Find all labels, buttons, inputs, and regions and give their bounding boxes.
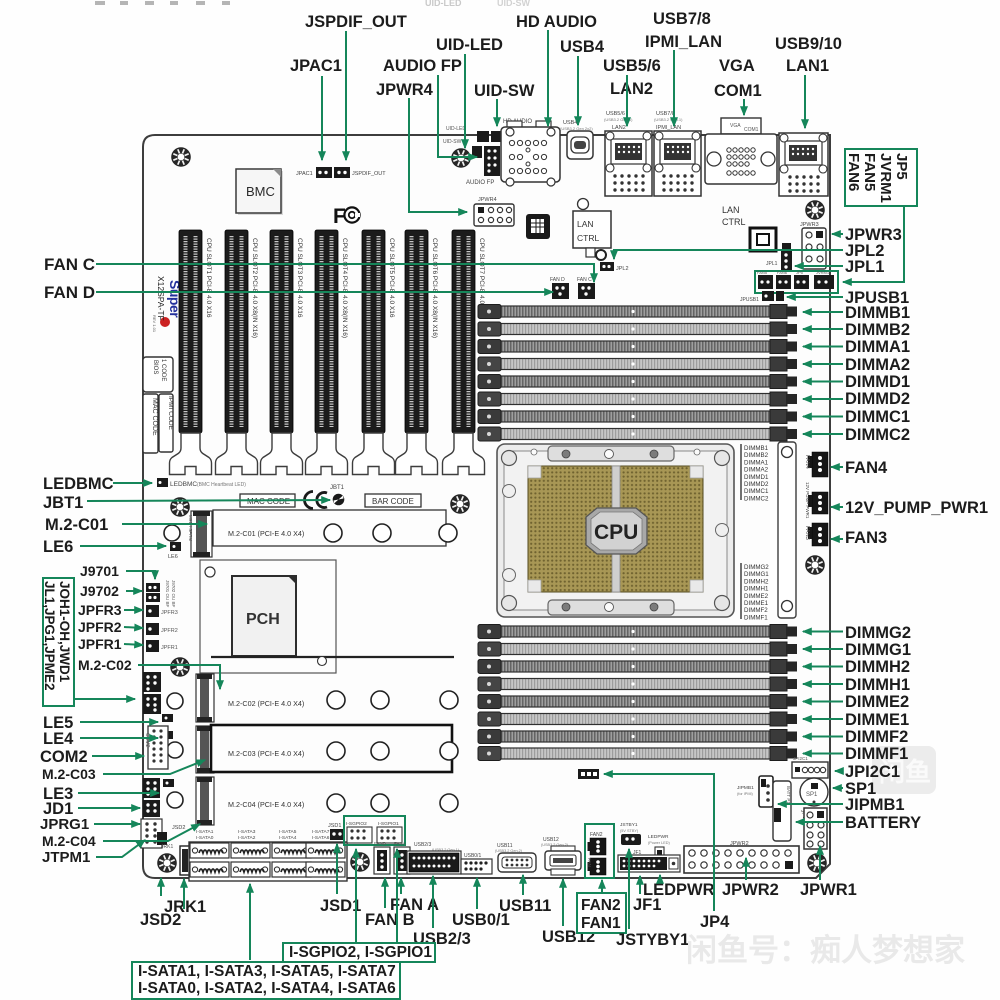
svg-text:VGA: VGA [730, 123, 741, 129]
svg-text:I-SATA1: I-SATA1 [196, 829, 214, 835]
svg-text:CPU SLOT4 PCI-E 4.0 X8(IN X16): CPU SLOT4 PCI-E 4.0 X8(IN X16) [341, 238, 348, 338]
svg-text:FAN3: FAN3 [804, 526, 810, 540]
svg-text:USB7/8: USB7/8 [653, 10, 711, 28]
svg-text:JPWR2: JPWR2 [722, 881, 779, 899]
svg-text:DIMME2: DIMME2 [845, 693, 909, 711]
svg-text:JP4: JP4 [700, 913, 730, 931]
svg-text:DIMMA2: DIMMA2 [744, 467, 769, 474]
svg-text:M.2-C02: M.2-C02 [78, 657, 132, 673]
svg-text:DIMMA1: DIMMA1 [744, 459, 769, 466]
svg-text:DIMMB1: DIMMB1 [744, 445, 769, 452]
svg-text:JPI2C1: JPI2C1 [793, 756, 808, 761]
svg-text:BATTERY: BATTERY [845, 814, 921, 832]
svg-text:FAN1: FAN1 [581, 915, 621, 932]
svg-text:DIMMF2: DIMMF2 [744, 607, 768, 614]
svg-text:CPU SLOT2 PCI-E 4.0 X8(IN X16): CPU SLOT2 PCI-E 4.0 X8(IN X16) [251, 238, 258, 338]
svg-text:JPL2: JPL2 [616, 266, 629, 272]
svg-text:JPWR3: JPWR3 [800, 222, 819, 228]
svg-text:LAN2: LAN2 [612, 125, 626, 131]
svg-text:(BMC Heartbeat LED): (BMC Heartbeat LED) [197, 482, 246, 488]
svg-text:VGA: VGA [719, 57, 755, 75]
svg-text:IPMI_LAN: IPMI_LAN [656, 125, 681, 131]
svg-text:USB11: USB11 [499, 897, 551, 915]
svg-text:AUDIO FP: AUDIO FP [383, 57, 462, 75]
svg-text:LAN1: LAN1 [786, 57, 829, 75]
svg-text:JPFR2: JPFR2 [161, 628, 178, 634]
svg-text:LEDBMC: LEDBMC [170, 481, 197, 488]
svg-text:J9701: J9701 [80, 563, 119, 579]
svg-text:DIMMG2: DIMMG2 [744, 564, 769, 571]
svg-text:USB9/10: USB9/10 [775, 35, 842, 53]
svg-text:I-SATA3: I-SATA3 [238, 829, 256, 835]
svg-text:J9702: J9702 [80, 583, 119, 599]
svg-text:DIMMH2: DIMMH2 [744, 578, 769, 585]
svg-text:JVRM1: JVRM1 [816, 270, 830, 275]
svg-text:DIMMA2: DIMMA2 [845, 356, 910, 374]
svg-text:REV 1.01: REV 1.01 [152, 315, 157, 333]
svg-text:LAN: LAN [577, 219, 594, 229]
svg-text:LEDPWR: LEDPWR [643, 881, 715, 899]
svg-text:IPMI CODE: IPMI CODE [167, 396, 174, 431]
svg-text:I-SATA5: I-SATA5 [279, 829, 297, 835]
svg-text:DIMMG1: DIMMG1 [744, 571, 769, 578]
svg-text:DIMMC2: DIMMC2 [845, 426, 910, 444]
svg-text:IPMI_LAN: IPMI_LAN [645, 33, 722, 51]
svg-text:FAN5: FAN5 [757, 270, 768, 275]
svg-text:DIMMC1: DIMMC1 [845, 408, 910, 426]
svg-text:USB0/1: USB0/1 [464, 853, 481, 859]
svg-text:LEDBMC: LEDBMC [43, 475, 114, 493]
svg-text:UID-LED: UID-LED [446, 126, 466, 132]
svg-text:LAN: LAN [722, 205, 740, 215]
svg-text:CPU: CPU [594, 521, 638, 544]
svg-text:COM1: COM1 [744, 127, 759, 133]
svg-text:(USB3.2 Gen.1): (USB3.2 Gen.1) [654, 117, 683, 122]
svg-text:DIMMH2: DIMMH2 [845, 658, 910, 676]
svg-text:JTPM1: JTPM1 [42, 849, 90, 866]
svg-text:JP5: JP5 [893, 153, 910, 180]
svg-text:I-SATA6: I-SATA6 [312, 835, 330, 841]
svg-text:FAN5: FAN5 [861, 153, 878, 191]
svg-text:DIMMG1: DIMMG1 [845, 641, 911, 659]
svg-text:FAN6: FAN6 [845, 153, 862, 191]
svg-text:DIMMD2: DIMMD2 [744, 481, 769, 488]
svg-text:FANB: FANB [374, 841, 386, 846]
svg-text:COM2: COM2 [40, 748, 88, 766]
svg-text:JPWR4: JPWR4 [478, 197, 497, 203]
svg-text:COM1: COM1 [714, 82, 762, 100]
svg-text:LEDPWR: LEDPWR [648, 834, 669, 840]
svg-text:USB2/3: USB2/3 [414, 842, 431, 848]
svg-text:DIMME1: DIMME1 [744, 600, 769, 607]
svg-text:JPI2C1: JPI2C1 [845, 763, 900, 781]
svg-text:BAR CODE: BAR CODE [372, 497, 414, 506]
svg-text:FAN3: FAN3 [845, 529, 887, 547]
svg-text:FAN6: FAN6 [777, 270, 788, 275]
svg-text:DIMMH1: DIMMH1 [845, 676, 910, 694]
svg-text:I-SATA0, I-SATA2, I-SATA4, I-S: I-SATA0, I-SATA2, I-SATA4, I-SATA6 [138, 980, 396, 997]
svg-text:CPU SLOT3 PCI-E 4.0 X16: CPU SLOT3 PCI-E 4.0 X16 [296, 238, 303, 318]
svg-text:I-SATA4: I-SATA4 [279, 835, 297, 841]
svg-text:LE6: LE6 [43, 538, 73, 556]
svg-text:JPWR1: JPWR1 [800, 881, 857, 899]
svg-text:JRK1: JRK1 [161, 844, 173, 850]
svg-text:DIMMF1: DIMMF1 [845, 745, 908, 763]
svg-text:JSD2: JSD2 [140, 911, 181, 929]
svg-text:JBT1: JBT1 [330, 485, 345, 491]
svg-text:DIMME2: DIMME2 [744, 593, 769, 600]
svg-text:DIMMD2: DIMMD2 [845, 390, 910, 408]
svg-text:MAC CODE: MAC CODE [151, 398, 158, 436]
svg-text:FAN2: FAN2 [581, 897, 621, 914]
svg-text:BIOS: BIOS [152, 360, 158, 374]
svg-text:J9702 OU BF: J9702 OU BF [171, 580, 176, 608]
svg-text:M.2-C04 (PCI-E 4.0 X4): M.2-C04 (PCI-E 4.0 X4) [228, 800, 304, 809]
svg-text:JPAC1: JPAC1 [296, 171, 313, 177]
svg-text:DIMMC2: DIMMC2 [744, 495, 769, 502]
svg-text:CTRL: CTRL [722, 217, 746, 227]
svg-text:FAN2: FAN2 [590, 832, 603, 838]
svg-text:DIMMG2: DIMMG2 [845, 624, 911, 642]
svg-text:DIMMB2: DIMMB2 [744, 452, 769, 459]
svg-text:JPL1: JPL1 [845, 258, 884, 276]
svg-text:JSD2: JSD2 [172, 825, 185, 831]
svg-text:JPL1: JPL1 [766, 261, 778, 267]
svg-text:M.2-C02 (PCI-E 4.0 X4): M.2-C02 (PCI-E 4.0 X4) [228, 699, 304, 708]
svg-text:(5V STBY): (5V STBY) [620, 829, 639, 833]
svg-text:M91H SPRM: M91H SPRM [188, 515, 193, 542]
svg-text:COM2: COM2 [144, 733, 150, 748]
svg-text:M.2-C01 (PCI-E 4.0 X4): M.2-C01 (PCI-E 4.0 X4) [228, 529, 304, 538]
svg-text:DIMMD1: DIMMD1 [744, 474, 769, 481]
svg-text:I-SGPIO2, I-SGPIO1: I-SGPIO2, I-SGPIO1 [289, 944, 432, 961]
svg-text:UID-LED: UID-LED [425, 0, 462, 8]
svg-text:FAN D: FAN D [550, 277, 565, 283]
svg-text:J9701 OU BF: J9701 OU BF [165, 580, 170, 608]
svg-text:JIPMB1: JIPMB1 [737, 785, 754, 791]
svg-text:X12SPA-TF: X12SPA-TF [156, 276, 166, 321]
svg-text:SP1: SP1 [806, 792, 818, 798]
svg-text:FAN C: FAN C [577, 277, 592, 283]
svg-text:BATT P1: BATT P1 [786, 786, 791, 804]
svg-text:JPFR3: JPFR3 [161, 610, 178, 616]
svg-text:(Power LED): (Power LED) [648, 841, 670, 845]
svg-text:1 CODE: 1 CODE [160, 359, 166, 381]
svg-text:UID-SW: UID-SW [497, 0, 530, 8]
svg-text:JSPDIF_OUT: JSPDIF_OUT [305, 13, 407, 31]
svg-text:M.2-C04: M.2-C04 [42, 833, 96, 849]
svg-text:DIMMA1: DIMMA1 [845, 338, 910, 356]
svg-text:CPU SLOT6 PCI-E 4.0 X8(IN X16): CPU SLOT6 PCI-E 4.0 X8(IN X16) [431, 238, 438, 338]
svg-text:DIMMF2: DIMMF2 [845, 728, 908, 746]
svg-text:LE4: LE4 [43, 730, 74, 748]
svg-text:FANA: FANA [394, 841, 406, 846]
svg-text:JPUSB1: JPUSB1 [740, 297, 759, 303]
svg-text:DIMME1: DIMME1 [845, 711, 909, 729]
svg-text:FAN: FAN [587, 858, 592, 867]
svg-text:(USB3.2 Gen.1): (USB3.2 Gen.1) [604, 117, 633, 122]
svg-text:USB5/6: USB5/6 [603, 57, 661, 75]
svg-text:JPRG1: JPRG1 [40, 816, 89, 833]
svg-text:PCH: PCH [246, 611, 280, 628]
svg-text:JBT1: JBT1 [43, 494, 83, 512]
svg-text:FAN4: FAN4 [845, 459, 888, 477]
svg-text:JPFR2: JPFR2 [78, 619, 122, 635]
svg-text:UID-LED: UID-LED [436, 36, 503, 54]
svg-text:DIMMB2: DIMMB2 [845, 321, 910, 339]
svg-text:JSD1: JSD1 [328, 823, 341, 829]
svg-text:DIMMH1: DIMMH1 [744, 586, 769, 593]
svg-text:I-SATA0: I-SATA0 [196, 835, 214, 841]
svg-text:M.2-C03 (PCI-E 4.0 X4): M.2-C03 (PCI-E 4.0 X4) [228, 749, 304, 758]
svg-text:CPU SLOT1 PCI-E 4.0 X16: CPU SLOT1 PCI-E 4.0 X16 [205, 238, 212, 318]
svg-text:DIMMB1: DIMMB1 [845, 304, 910, 322]
svg-text:FAN4: FAN4 [804, 455, 810, 469]
svg-text:M.2-C01: M.2-C01 [45, 516, 108, 534]
svg-text:LE6: LE6 [168, 554, 178, 560]
svg-text:HD AUDIO: HD AUDIO [516, 13, 597, 31]
svg-text:JOH1-OH,JWD1: JOH1-OH,JWD1 [57, 581, 72, 683]
svg-text:LAN2: LAN2 [610, 80, 653, 98]
svg-text:MAC CODE: MAC CODE [247, 497, 290, 506]
svg-text:JSTYBY1: JSTYBY1 [616, 931, 689, 949]
svg-text:UID-SW: UID-SW [443, 139, 462, 145]
svg-text:JPFR1: JPFR1 [161, 645, 178, 651]
svg-text:JVRM1: JVRM1 [877, 153, 894, 203]
svg-text:FAN C: FAN C [44, 255, 95, 274]
svg-text:CPU SLOT5 PCI-E 4.0 X16: CPU SLOT5 PCI-E 4.0 X16 [388, 238, 395, 318]
svg-text:JPAC1: JPAC1 [290, 57, 342, 75]
svg-text:I-SGPIO1: I-SGPIO1 [378, 821, 399, 827]
svg-text:JSTBY1: JSTBY1 [620, 822, 638, 828]
svg-text:BMC: BMC [246, 184, 275, 199]
svg-text:I-SATA2: I-SATA2 [238, 835, 256, 841]
svg-text:I-SGPIO2: I-SGPIO2 [346, 821, 367, 827]
svg-text:USB4: USB4 [560, 38, 605, 56]
svg-text:JPFR1: JPFR1 [78, 636, 122, 652]
svg-text:I-SATA7: I-SATA7 [312, 829, 330, 835]
svg-text:12V PUMP PWR1: 12V PUMP PWR1 [805, 482, 810, 519]
svg-text:DIMMC1: DIMMC1 [744, 488, 769, 495]
svg-text:12V_PUMP_PWR1: 12V_PUMP_PWR1 [845, 499, 988, 517]
svg-text:JSPDIF_OUT: JSPDIF_OUT [352, 171, 386, 177]
svg-text:I-SATA1, I-SATA3, I-SATA5, I-S: I-SATA1, I-SATA3, I-SATA5, I-SATA7 [138, 963, 396, 980]
svg-text:闲鱼号：痴人梦想家: 闲鱼号：痴人梦想家 [686, 933, 965, 968]
svg-text:CTRL: CTRL [577, 233, 599, 243]
svg-text:(for IPMI): (for IPMI) [737, 792, 754, 796]
svg-text:JPFR3: JPFR3 [78, 602, 122, 618]
svg-text:UID-SW: UID-SW [474, 82, 535, 100]
svg-text:JPWR4: JPWR4 [376, 81, 434, 99]
svg-text:DIMMD1: DIMMD1 [845, 373, 910, 391]
svg-text:M.2-C03: M.2-C03 [42, 766, 96, 782]
svg-text:JL1,JPG1,JPME2: JL1,JPG1,JPME2 [42, 581, 57, 691]
svg-text:AUDIO FP: AUDIO FP [466, 180, 494, 186]
svg-text:JP5: JP5 [796, 270, 804, 275]
svg-text:FAN D: FAN D [44, 283, 95, 302]
svg-text:JIPMB1: JIPMB1 [845, 796, 905, 814]
svg-text:DIMMF1: DIMMF1 [744, 614, 768, 621]
